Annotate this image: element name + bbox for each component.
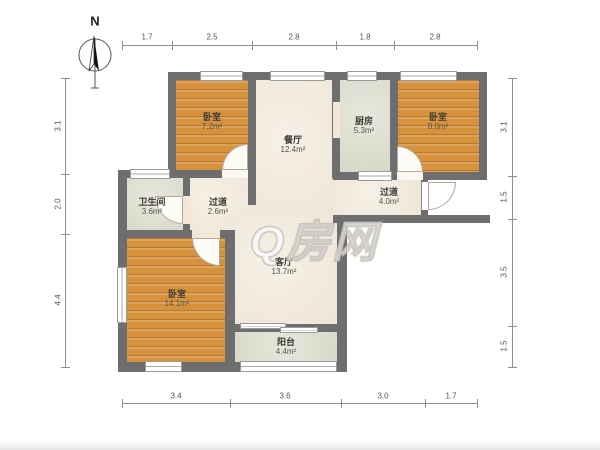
tick xyxy=(477,399,478,408)
tick xyxy=(61,234,70,235)
dimension-label: 4.4 xyxy=(54,294,63,305)
door-opening-bedroom-top-right xyxy=(397,172,423,180)
dimension-label: 2.5 xyxy=(206,33,217,42)
dimension-label: 2.8 xyxy=(288,33,299,42)
tick xyxy=(341,399,342,408)
dimension-label: 1.7 xyxy=(445,392,456,401)
window xyxy=(117,267,127,323)
dimension-label: 3.6 xyxy=(279,392,290,401)
window xyxy=(200,71,243,81)
window xyxy=(130,169,170,179)
wall xyxy=(479,72,487,180)
dimension-label: 3.0 xyxy=(377,392,388,401)
entrance-door-arc xyxy=(428,182,456,210)
door-opening-bathroom xyxy=(183,196,190,224)
wall xyxy=(248,72,256,205)
window xyxy=(400,71,457,81)
dimension-label: 1.5 xyxy=(500,340,509,351)
dimension-label: 1.5 xyxy=(500,191,509,202)
tick xyxy=(252,41,253,50)
window xyxy=(145,361,182,372)
tick xyxy=(61,174,70,175)
compass-icon xyxy=(68,26,122,92)
floor-plan: 卧室 7.2m² 餐厅 12.4m² 厨房 5.3m² 卧室 8.0m² 卫生间… xyxy=(0,0,600,450)
door-opening-bedroom-bottom-left xyxy=(192,230,220,238)
room-kitchen-floor xyxy=(332,72,398,180)
door-opening-kitchen xyxy=(333,102,340,138)
tick xyxy=(172,41,173,50)
window xyxy=(270,71,325,81)
tick xyxy=(61,367,70,368)
sliding-door-pane xyxy=(280,327,318,333)
wall xyxy=(333,215,490,223)
sliding-door-pane xyxy=(358,171,392,181)
dimension-label: 3.1 xyxy=(500,121,509,132)
dimension-line-right xyxy=(512,78,513,368)
dimension-line-top xyxy=(122,45,478,46)
tick xyxy=(394,41,395,50)
tick xyxy=(477,41,478,50)
room-living-floor xyxy=(225,215,347,332)
tick xyxy=(122,41,123,50)
wall xyxy=(337,215,347,372)
dimension-label: 2.8 xyxy=(429,33,440,42)
wall xyxy=(225,230,235,372)
dimension-label: 2.0 xyxy=(54,198,63,209)
tick xyxy=(508,78,517,79)
wall xyxy=(168,72,176,178)
door-opening-bedroom-top-left xyxy=(222,170,248,178)
dimension-label: 3.4 xyxy=(170,392,181,401)
dimension-label: 1.7 xyxy=(141,33,152,42)
tick xyxy=(425,399,426,408)
room-dining-floor xyxy=(248,72,340,238)
tick xyxy=(336,41,337,50)
dimension-label: 3.5 xyxy=(500,266,509,277)
dimension-label: 3.1 xyxy=(54,120,63,131)
dimension-line-left xyxy=(65,78,66,368)
tick xyxy=(508,326,517,327)
tick xyxy=(122,399,123,408)
tick xyxy=(508,176,517,177)
tick xyxy=(508,219,517,220)
tick xyxy=(508,367,517,368)
dimension-label: 1.8 xyxy=(359,33,370,42)
bottom-shade xyxy=(0,440,600,450)
tick xyxy=(230,399,231,408)
window xyxy=(240,361,337,372)
window xyxy=(347,71,377,81)
